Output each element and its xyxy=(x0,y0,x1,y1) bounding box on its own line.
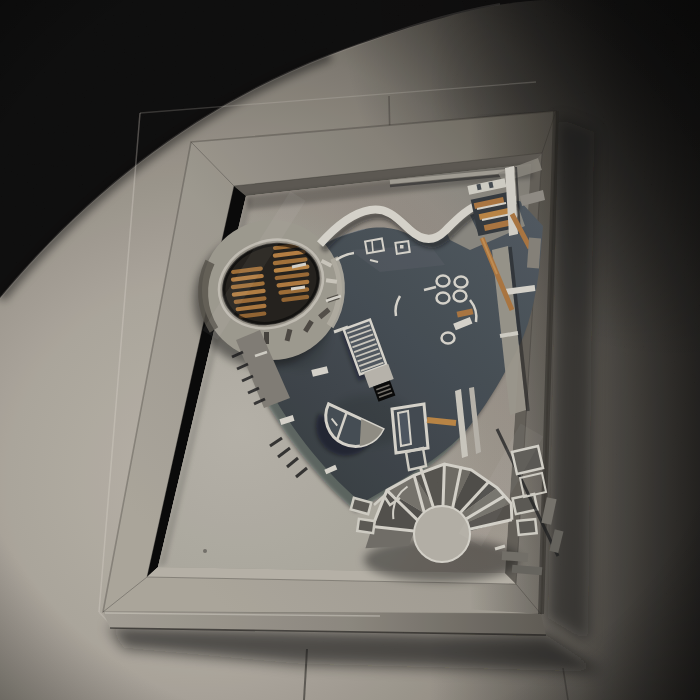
vignette xyxy=(0,0,700,700)
scene-svg xyxy=(0,0,700,700)
photo-canvas xyxy=(0,0,700,700)
